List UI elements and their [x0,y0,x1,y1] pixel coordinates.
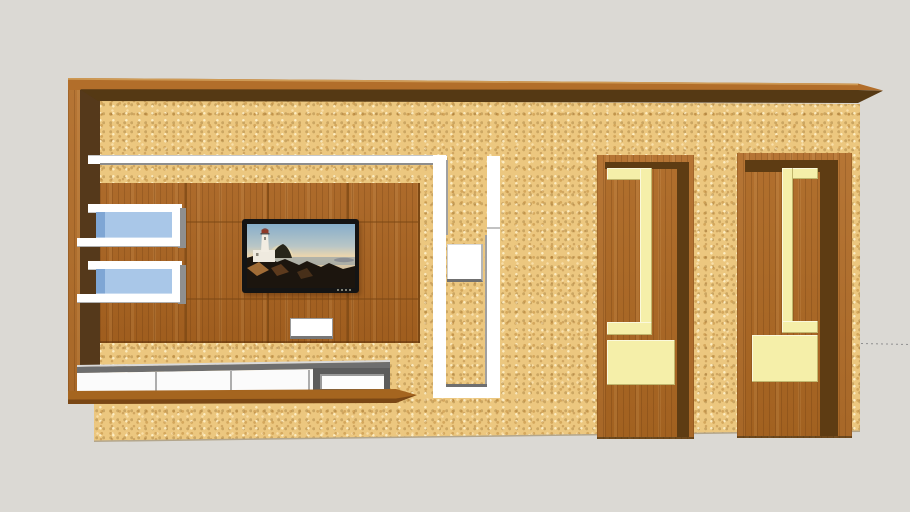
ceiling-beam[interactable] [68,78,883,103]
door-left[interactable] [597,155,694,439]
door-left-leaf[interactable] [605,169,677,437]
shelf-bottom [77,294,180,303]
drawer-seam [155,372,157,392]
door-inlay-panel [752,335,818,382]
molding-seam [487,227,500,229]
molding-shadow [446,384,487,387]
shelf-glass [96,212,172,240]
panel-edge [100,341,420,343]
panel-edge [418,183,420,343]
drawer-seam [308,370,310,392]
console-open-shelf[interactable] [313,368,390,392]
door-inlay-stripe [782,168,793,333]
molding-vertical-left [433,155,446,398]
glass-shelf-box-lower[interactable] [75,259,190,304]
molding-shadow [100,163,447,165]
door-inlay-foot-bar [782,321,818,333]
wall-tv[interactable] [242,219,359,293]
molding-shadow [446,160,448,235]
door-base-shadow [737,436,852,438]
molding-shadow [485,235,487,385]
door-right-leaf[interactable] [745,172,820,436]
door-base-shadow [597,437,694,439]
door-inlay-panel [607,340,675,385]
tv-accessory-shelf[interactable] [290,318,333,339]
shelf-glass [96,269,172,296]
tv-brand-mark [337,289,351,291]
construction-guide-line [861,344,910,345]
open-shelf-interior [320,374,384,389]
door-inlay-foot-bar [607,322,652,335]
glass-shelf-box-upper[interactable] [75,202,190,248]
wall-cube-shelf[interactable] [447,244,483,282]
shelf-bottom [77,238,180,247]
media-console[interactable] [77,360,390,393]
molding-vertical-right [487,156,500,398]
door-inlay-stripe [640,168,652,335]
tv-screen [247,224,355,288]
model-viewport[interactable] [0,0,910,512]
drawer-seam [230,371,232,392]
door-right[interactable] [737,153,852,438]
